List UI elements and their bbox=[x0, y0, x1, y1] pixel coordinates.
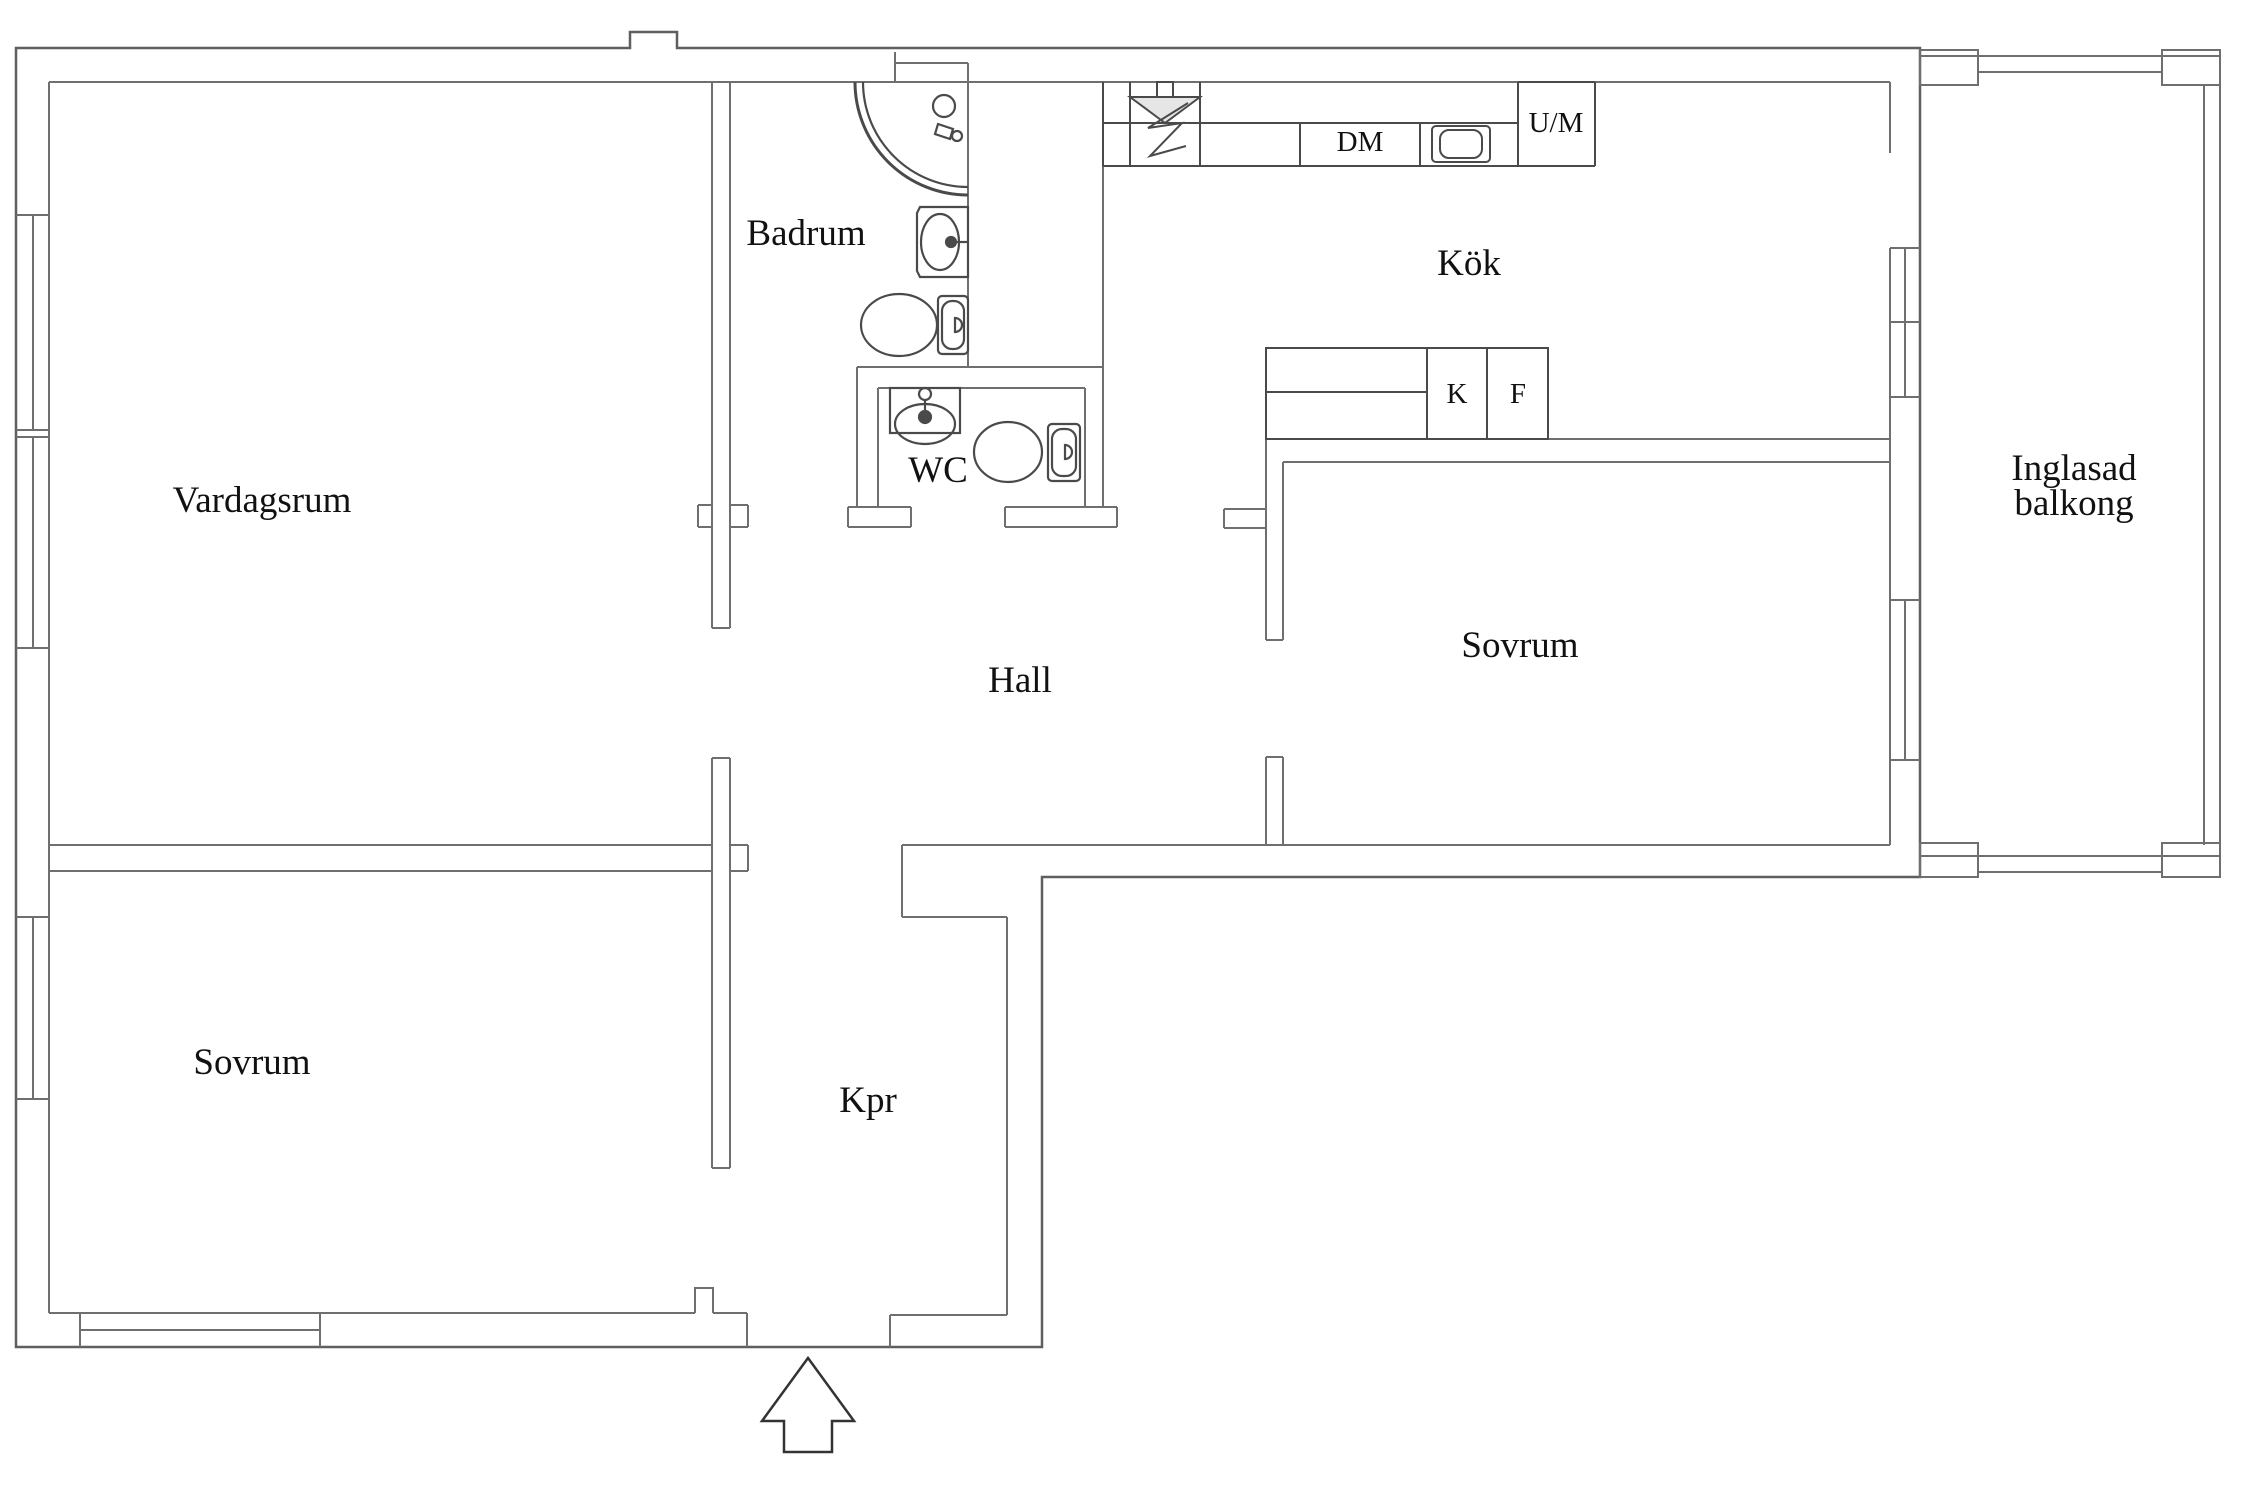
window-bottom-bedroom bbox=[80, 1313, 320, 1347]
room-label-sovrum-left: Sovrum bbox=[193, 1042, 310, 1083]
room-label-hall: Hall bbox=[988, 660, 1052, 701]
stove-hood-icon bbox=[1130, 82, 1200, 156]
wc-toilet-icon bbox=[974, 422, 1080, 482]
appliance-label-dishwasher: DM bbox=[1337, 126, 1384, 158]
kf-cabinet bbox=[1266, 348, 1548, 439]
room-label-wc: WC bbox=[908, 450, 968, 491]
floor-plan: Vardagsrum Sovrum Hall Kpr Badrum WC Kök… bbox=[0, 0, 2250, 1500]
wall-hall-south bbox=[49, 845, 1890, 871]
room-label-sovrum-right: Sovrum bbox=[1461, 625, 1578, 666]
appliance-label-freezer: F bbox=[1510, 378, 1526, 410]
walls bbox=[16, 32, 2220, 1347]
kitchen-sink-icon bbox=[1432, 126, 1490, 162]
window-left-bedroom bbox=[16, 917, 49, 1099]
bathroom-toilet-icon bbox=[861, 294, 968, 356]
window-right-kitchen bbox=[1890, 248, 1920, 397]
room-label-balcony-line2: balkong bbox=[2014, 483, 2133, 524]
labels: Vardagsrum Sovrum Hall Kpr Badrum WC Kök… bbox=[173, 107, 2138, 1121]
wall-livingroom-right bbox=[698, 82, 748, 1168]
bathroom-sink-icon bbox=[917, 207, 968, 277]
appliance-label-fridge: K bbox=[1447, 378, 1468, 410]
window-left-living-2 bbox=[16, 437, 49, 648]
appliance-label-washer: U/M bbox=[1529, 107, 1584, 139]
window-right-bedroom bbox=[1890, 600, 1920, 760]
room-label-kok: Kök bbox=[1437, 243, 1501, 284]
room-label-badrum: Badrum bbox=[746, 213, 865, 254]
entrance-arrow-icon bbox=[762, 1358, 854, 1452]
room-label-vardagsrum: Vardagsrum bbox=[173, 480, 352, 521]
wc-sink-icon bbox=[890, 388, 960, 444]
room-label-kpr: Kpr bbox=[839, 1080, 897, 1121]
corner-shower-icon bbox=[855, 82, 968, 195]
window-left-living-1 bbox=[16, 215, 49, 430]
top-wall-inner bbox=[49, 52, 1890, 82]
